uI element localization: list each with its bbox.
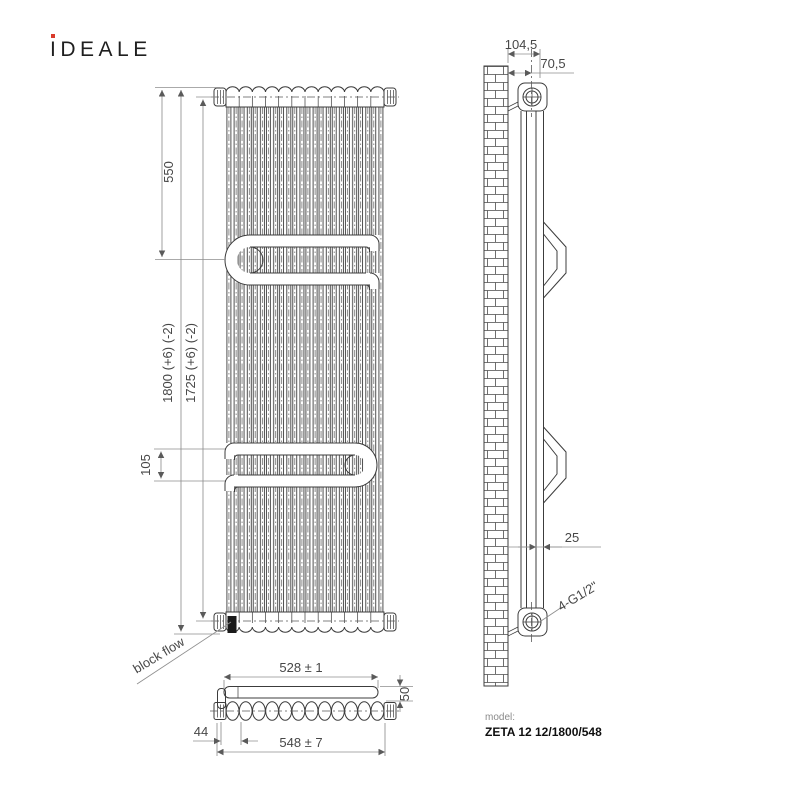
dim-548-label: 548 ± 7 (279, 735, 322, 750)
dim-25-label: 25 (565, 530, 579, 545)
dim-44-label: 44 (194, 724, 208, 739)
thread-size-label: 4-G1/2" (555, 578, 601, 614)
dim-1800-label: 1800 (+6) (-2) (160, 323, 175, 403)
model-label: model: (485, 712, 602, 725)
dim-50-label: 50 (397, 687, 412, 701)
model-value: ZETA 12 12/1800/548 (485, 725, 602, 740)
dim-528-label: 528 ± 1 (279, 660, 322, 675)
side-towel-bar-upper (544, 222, 567, 298)
side-view-drawing: 104,5 70,5 25 4-G1/2" (484, 37, 601, 686)
top-connection-fitting (508, 83, 547, 111)
top-view-drawing: 528 ± 1 548 ± 7 44 50 (193, 660, 413, 756)
front-dimensions: 550 1800 (+6) (-2) 1725 (+6) (-2) 105 (138, 88, 226, 635)
front-top-header (211, 87, 399, 107)
radiator-columns (226, 107, 384, 612)
side-towel-bar-lower (544, 427, 567, 503)
side-view-tubes (521, 111, 544, 608)
dim-70-5-label: 70,5 (540, 56, 565, 71)
dim-550-label: 550 (161, 161, 176, 183)
dim-105-label: 105 (138, 454, 153, 476)
technical-drawing-canvas: IDEALE (0, 0, 800, 800)
model-designation: model: ZETA 12 12/1800/548 (485, 712, 602, 740)
front-bottom-header (211, 612, 399, 632)
top-view-towel-bar (224, 687, 378, 699)
front-view-drawing: block flow 550 1800 (+6) (-2) 1725 (+6) … (130, 87, 399, 684)
dim-104-5-label: 104,5 (505, 37, 538, 52)
bottom-connection-fitting (508, 608, 547, 636)
top-view-radiator-body (210, 702, 400, 721)
wall-section (484, 66, 508, 686)
dim-1725-label: 1725 (+6) (-2) (183, 323, 198, 403)
block-flow-mark (228, 616, 237, 633)
radiator-technical-drawing: block flow 550 1800 (+6) (-2) 1725 (+6) … (0, 0, 800, 800)
side-view-dimensions: 104,5 70,5 25 4-G1/2" (505, 37, 601, 621)
